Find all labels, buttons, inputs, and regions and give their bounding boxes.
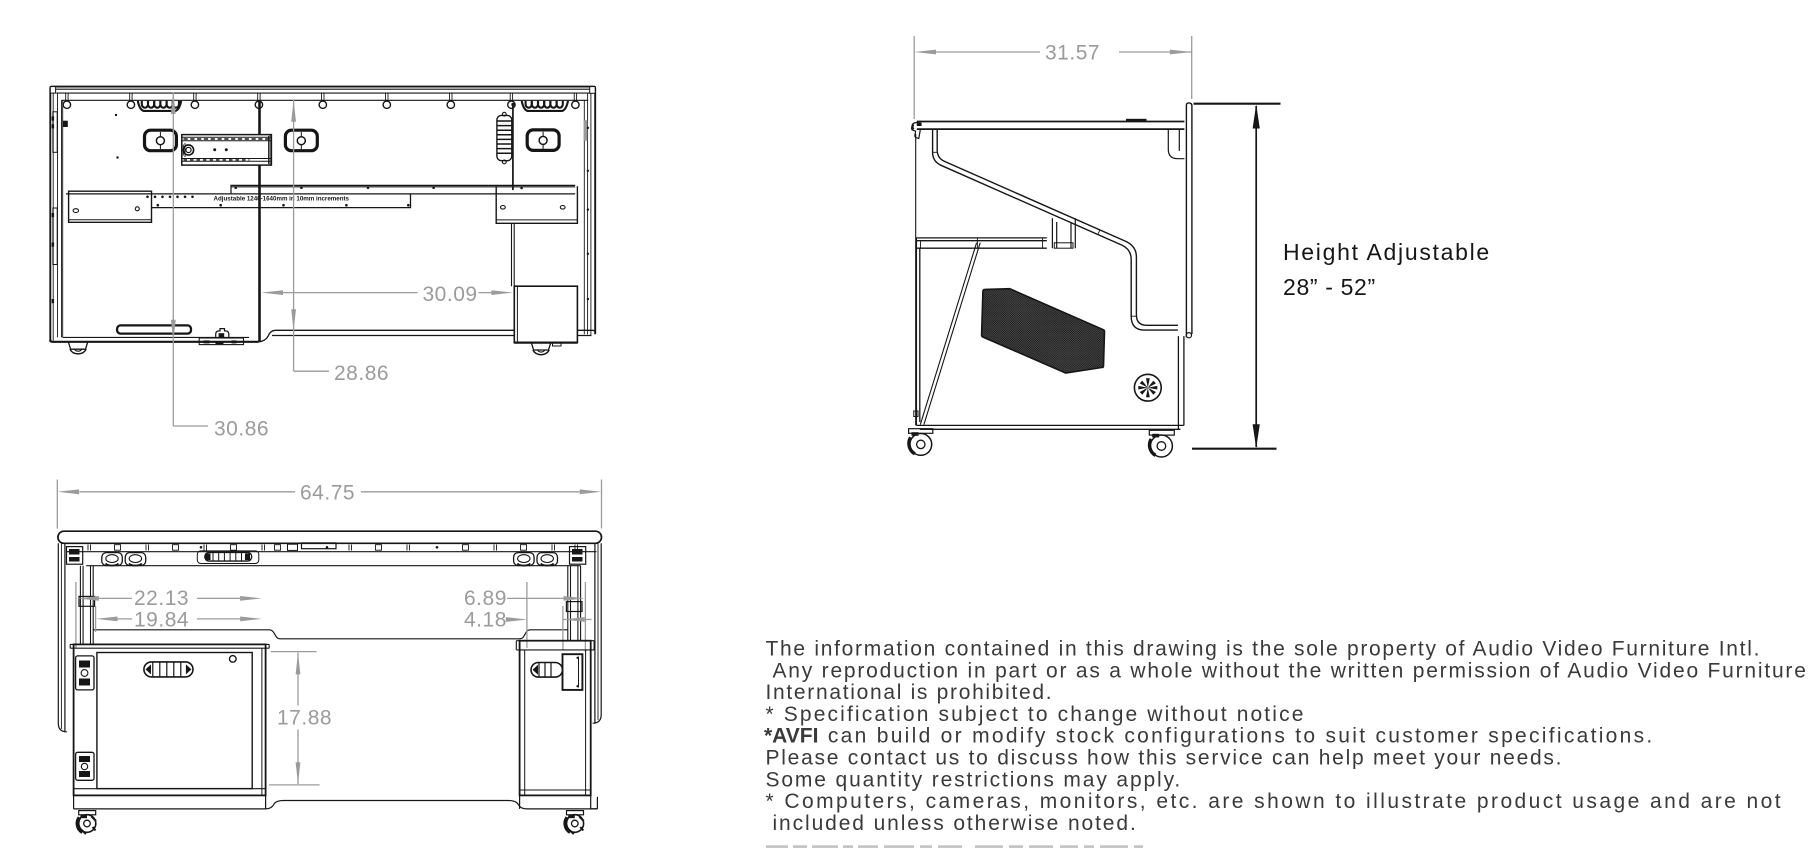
svg-text:The information contained in t: The information contained in this drawin… (766, 638, 1762, 661)
svg-text:* Specification subject to cha: * Specification subject to change withou… (766, 703, 1306, 726)
svg-text:Some quantity restrictions may: Some quantity restrictions may apply. (766, 768, 1183, 791)
svg-text:64.75: 64.75 (300, 482, 355, 505)
svg-text:31.57: 31.57 (1045, 42, 1100, 65)
svg-text:6.89: 6.89 (464, 587, 507, 610)
svg-text:Adjustable 1240-1640mm in 10mm: Adjustable 1240-1640mm in 10mm increment… (214, 196, 350, 203)
svg-text:can build or modify stock conf: can build or modify stock configurations… (828, 725, 1655, 748)
svg-text:4.18: 4.18 (464, 609, 507, 632)
svg-text:Height Adjustable: Height Adjustable (1283, 239, 1491, 265)
svg-text:28.86: 28.86 (334, 362, 389, 385)
svg-text:30.86: 30.86 (214, 418, 269, 441)
svg-text:30.09: 30.09 (423, 283, 478, 306)
svg-text:Any reproduction in part or as: Any reproduction in part or as a whole w… (773, 659, 1808, 682)
svg-text:* Computers, cameras, monitors: * Computers, cameras, monitors, etc. are… (766, 790, 1784, 813)
svg-text:included unless otherwise note: included unless otherwise noted. (773, 812, 1138, 835)
svg-text:17.88: 17.88 (277, 707, 332, 730)
svg-text:Please contact us to discuss h: Please contact us to discuss how this se… (766, 747, 1564, 770)
svg-text:22.13: 22.13 (134, 587, 189, 610)
svg-text:19.84: 19.84 (134, 608, 189, 631)
svg-text:*AVFI: *AVFI (764, 725, 818, 748)
svg-text:International is prohibited.: International is prohibited. (766, 681, 1054, 704)
svg-text:28” - 52”: 28” - 52” (1283, 274, 1376, 300)
